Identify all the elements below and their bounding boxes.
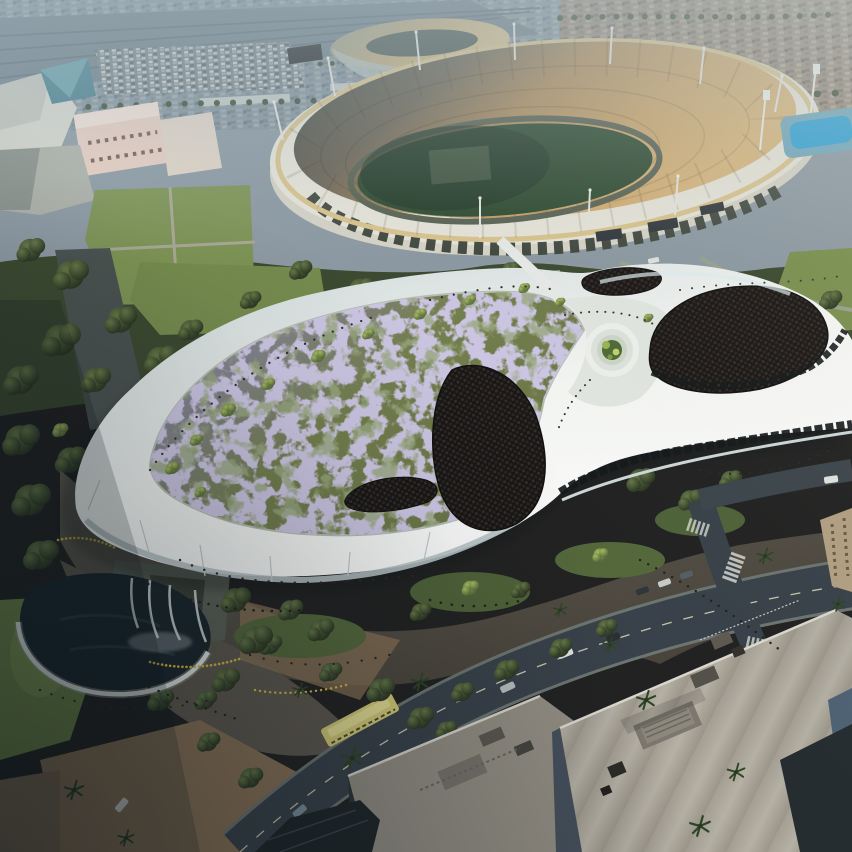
screenshot-root	[0, 0, 852, 852]
lighting-overlays	[0, 0, 852, 852]
aerial-rendering	[0, 0, 852, 852]
